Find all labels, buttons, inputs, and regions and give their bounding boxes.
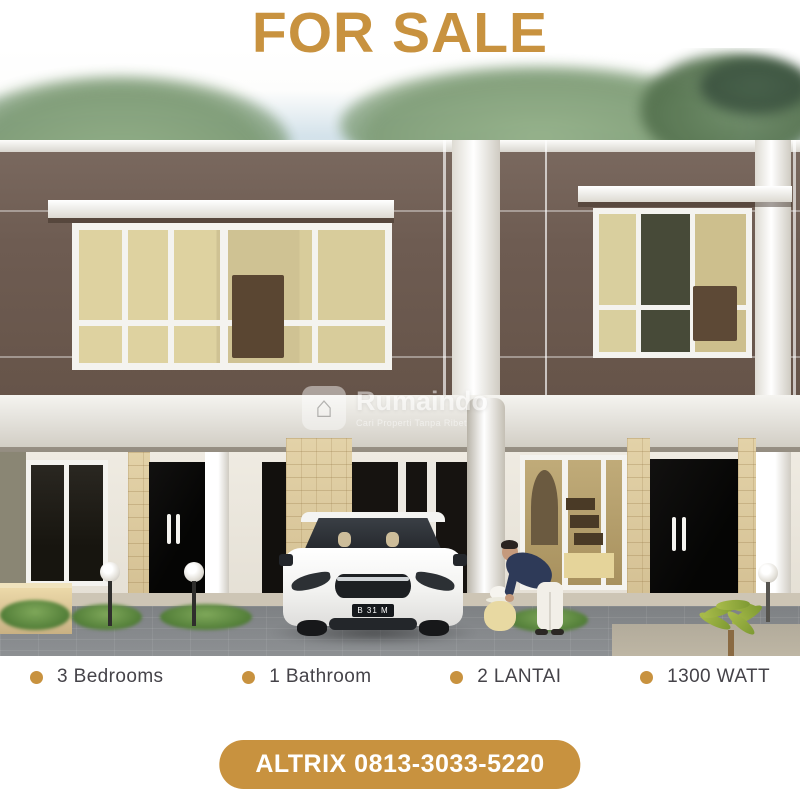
- man-shoe: [551, 629, 564, 635]
- bullet-icon: [30, 671, 43, 684]
- stone-pillar: [128, 452, 150, 608]
- watermark-tagline: Cari Properti Tanpa Ribet: [356, 418, 488, 428]
- man: [495, 538, 575, 638]
- man-hand: [505, 594, 514, 602]
- side-mirror-left: [279, 554, 293, 566]
- left-window-canopy: [48, 200, 394, 218]
- watermark: ⌂ Rumaindo Cari Properti Tanpa Ribet: [302, 378, 572, 438]
- feature-list: 3 Bedrooms 1 Bathroom 2 LANTAI 1300 WATT: [30, 658, 770, 696]
- man-arm: [504, 569, 519, 596]
- facade-trim-line: [545, 140, 547, 398]
- tree-far-right: [700, 58, 800, 114]
- grille: [335, 574, 411, 598]
- shrub: [72, 604, 142, 630]
- canopy-shadow: [578, 202, 792, 207]
- stair-step: [570, 515, 599, 528]
- stone-pillar: [738, 438, 756, 612]
- bullet-icon: [450, 671, 463, 684]
- man-shoe: [535, 629, 548, 635]
- stone-pillar: [627, 438, 650, 612]
- feature-label: 3 Bedrooms: [57, 666, 163, 688]
- feature-bedrooms: 3 Bedrooms: [30, 666, 163, 688]
- bullet-icon: [242, 671, 255, 684]
- wheel-left: [297, 620, 327, 636]
- facade-trim-line: [443, 140, 446, 398]
- flyer-canvas: FOR SALE: [0, 0, 800, 800]
- house-photo: B 31 M ⌂ Rumaindo: [0, 48, 800, 656]
- center-pillar: [452, 140, 500, 398]
- facade-trim-line: [793, 140, 796, 398]
- upper-window-right: [593, 208, 752, 358]
- stair-step: [566, 498, 595, 511]
- upper-window-left: [72, 223, 392, 370]
- feature-label: 1 Bathroom: [269, 666, 371, 688]
- bullet-icon: [640, 671, 653, 684]
- house-icon: ⌂: [302, 386, 346, 430]
- stair-step: [574, 533, 603, 546]
- page-title: FOR SALE: [0, 0, 800, 66]
- lower-window-left: [26, 460, 108, 586]
- side-mirror-right: [453, 554, 467, 566]
- garden-lamp: [758, 563, 778, 583]
- license-plate: B 31 M: [352, 604, 394, 617]
- feature-label: 1300 WATT: [667, 666, 770, 688]
- palm-plant: [700, 600, 764, 656]
- wheel-right: [419, 620, 449, 636]
- man-pants: [537, 582, 563, 630]
- lower-intake: [329, 618, 417, 630]
- garden-lamp: [184, 562, 204, 582]
- wardrobe: [232, 275, 284, 357]
- feature-label: 2 LANTAI: [477, 666, 561, 688]
- shrub: [0, 600, 70, 630]
- contact-button[interactable]: ALTRIX 0813-3033-5220: [219, 740, 580, 789]
- right-pillar: [755, 140, 791, 398]
- white-suv: B 31 M: [283, 512, 463, 636]
- feature-bathroom: 1 Bathroom: [242, 666, 371, 688]
- right-window-canopy: [578, 186, 792, 202]
- shrub: [160, 604, 252, 630]
- interior-arch: [531, 470, 558, 545]
- garden-lamp: [100, 562, 120, 582]
- man-hair: [501, 540, 518, 549]
- watermark-brand: Rumaindo: [356, 388, 488, 415]
- feature-wattage: 1300 WATT: [640, 666, 770, 688]
- cabinet: [693, 286, 737, 341]
- parapet-coping: [0, 140, 800, 152]
- feature-floors: 2 LANTAI: [450, 666, 561, 688]
